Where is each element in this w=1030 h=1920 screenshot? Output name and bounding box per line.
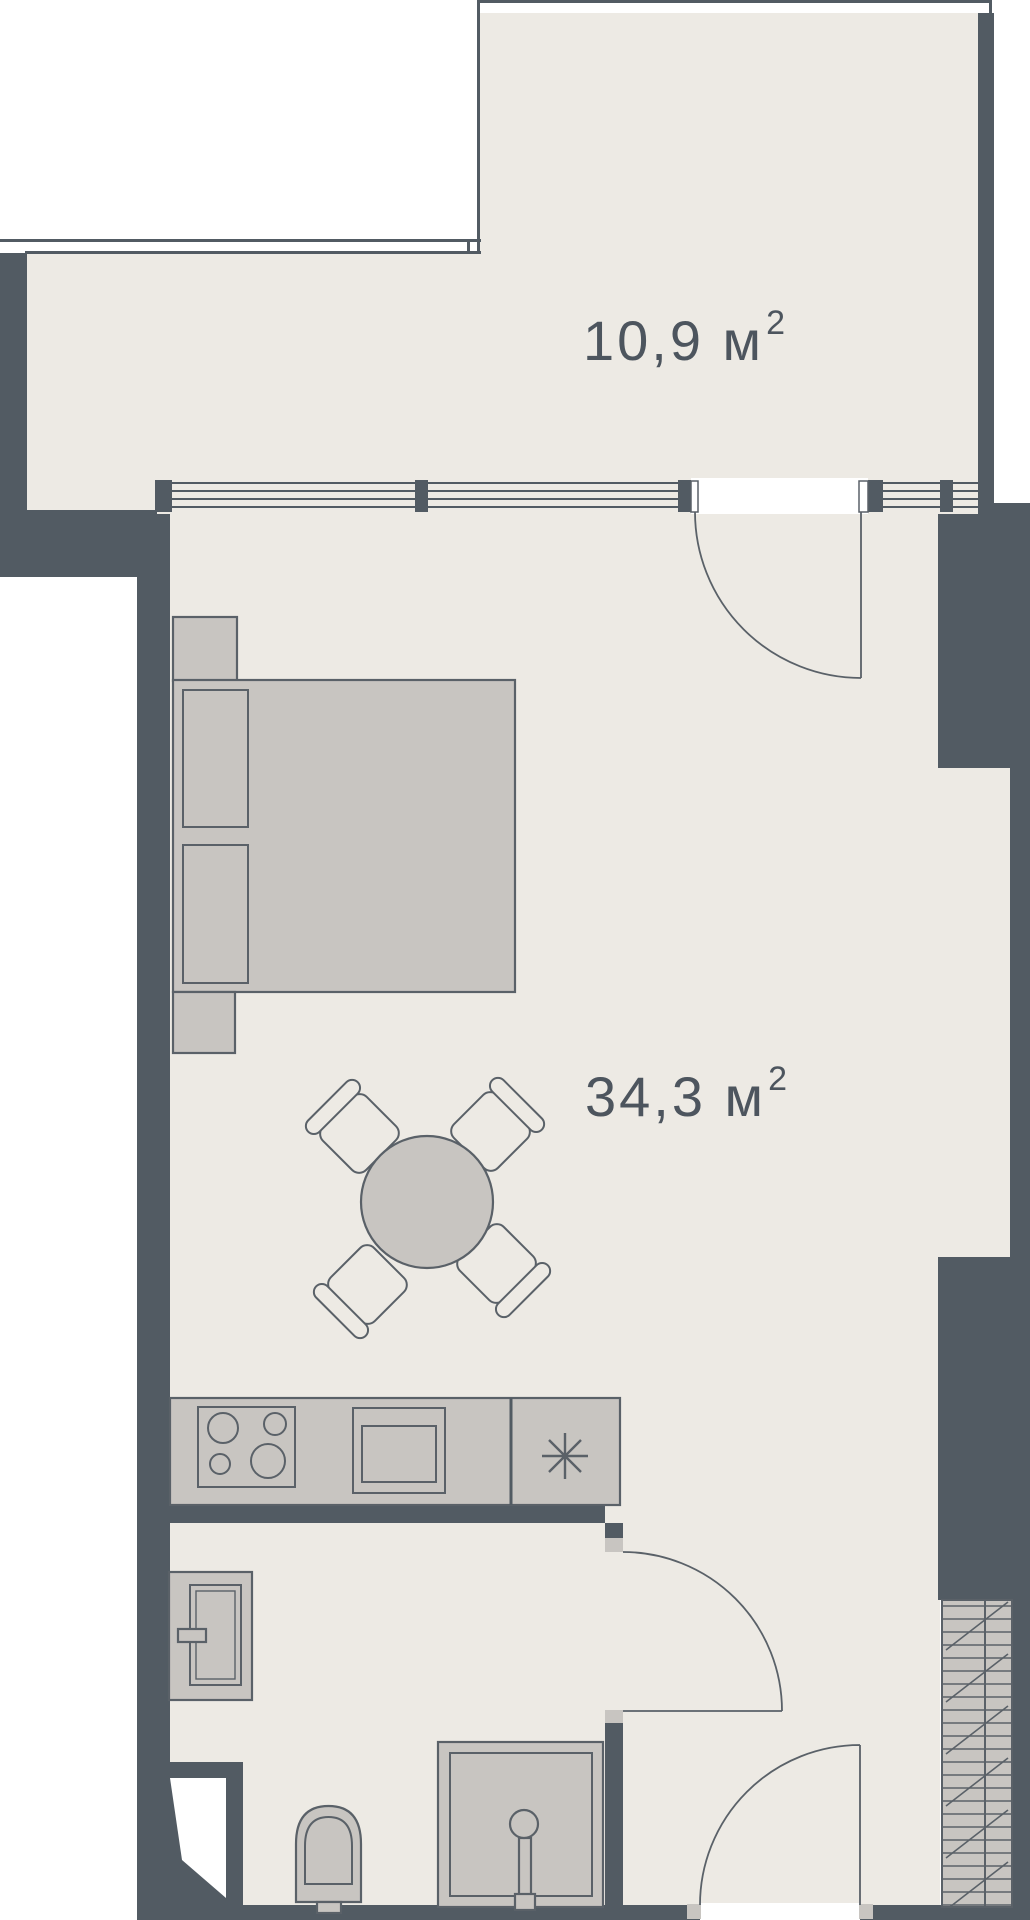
- railing-line: [25, 251, 481, 254]
- living-room-area-value: 34,3 м: [585, 1068, 766, 1126]
- shower-stem-base: [515, 1894, 535, 1910]
- window-mullion: [415, 480, 428, 512]
- floor-plan-drawing: [0, 0, 1030, 1920]
- nightstand: [173, 617, 237, 681]
- door-hinge-block: [687, 1904, 701, 1919]
- terrace-floor-main: [480, 13, 978, 482]
- kitchen-counter: [170, 1398, 620, 1505]
- door-frame: [691, 481, 698, 512]
- wall-segment: [1010, 768, 1030, 1257]
- window-jamb: [868, 480, 883, 512]
- room-label-living-room: 34,3 м2: [486, 1068, 886, 1126]
- toilet-tank: [317, 1902, 341, 1913]
- wall-segment: [137, 1762, 243, 1778]
- wall-segment: [938, 1257, 1030, 1600]
- shaft-hatch: [942, 1600, 1012, 1907]
- living-room-floor: [170, 510, 938, 1505]
- balcony-door-opening: [691, 478, 868, 514]
- ventilation-shaft: [942, 1600, 1012, 1907]
- window-band: [155, 478, 978, 514]
- railing-line: [0, 239, 481, 242]
- door-frame: [859, 481, 868, 512]
- hall-floor: [605, 1505, 940, 1907]
- railing-line: [467, 239, 470, 254]
- terrace-floor-arm: [27, 254, 480, 482]
- wall-segment: [0, 510, 157, 577]
- wall-segment: [137, 510, 170, 1762]
- faucet-icon: [178, 1629, 206, 1642]
- living-room-floor-bay: [938, 768, 1010, 1257]
- railing-line: [477, 0, 992, 3]
- railing-line: [477, 3, 480, 254]
- bed: [173, 680, 515, 992]
- window-mullion: [940, 480, 953, 512]
- wall-segment: [1012, 1600, 1030, 1907]
- terrace-floor-arm-low: [27, 482, 157, 510]
- railing-line: [989, 3, 992, 13]
- terrace-area-sup: 2: [766, 306, 785, 340]
- door-hinge-block: [605, 1538, 623, 1552]
- wall-segment: [605, 1523, 623, 1540]
- wall-segment: [605, 1723, 623, 1907]
- living-room-area-sup: 2: [768, 1062, 787, 1096]
- bed-group: [173, 617, 515, 1053]
- wall-segment: [978, 13, 994, 510]
- shower-stem: [519, 1838, 531, 1896]
- wall-segment: [938, 503, 1030, 768]
- room-label-terrace: 10,9 м2: [484, 312, 884, 370]
- nightstand: [173, 992, 235, 1053]
- window-jamb: [155, 480, 172, 512]
- floor-plan: 10,9 м2 34,3 м2: [0, 0, 1030, 1920]
- window-jamb: [678, 480, 691, 512]
- dining-table: [361, 1136, 493, 1268]
- wall-segment: [167, 1505, 605, 1523]
- wall-segment: [226, 1905, 1030, 1920]
- door-hinge-block: [859, 1904, 873, 1919]
- terrace-area-value: 10,9 м: [583, 312, 764, 370]
- entry-door-opening: [700, 1903, 860, 1920]
- wall-segment: [0, 253, 27, 510]
- kitchen-group: [170, 1398, 620, 1505]
- shower-head-icon: [510, 1810, 538, 1838]
- door-hinge-block: [605, 1710, 623, 1723]
